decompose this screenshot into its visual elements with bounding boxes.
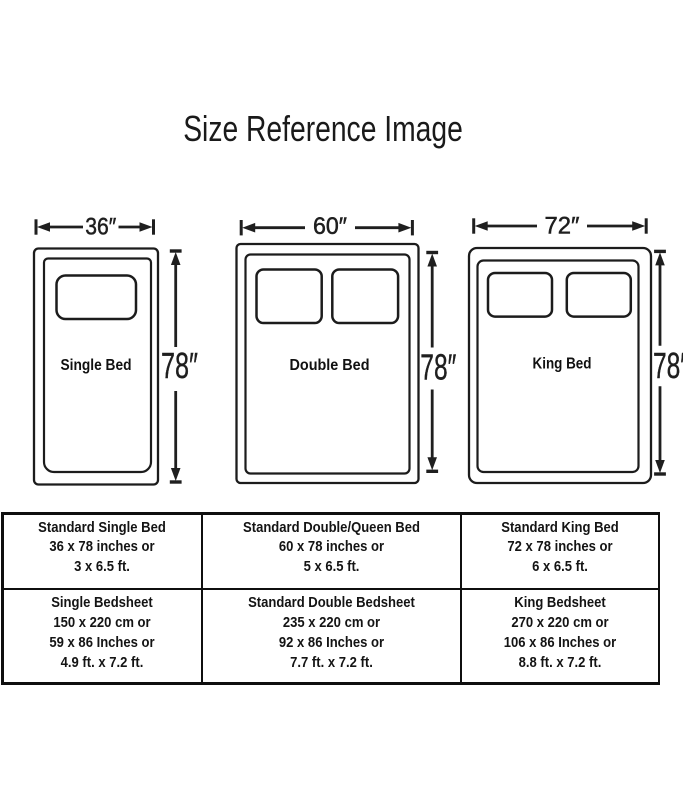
svg-text:King Bed: King Bed (533, 356, 592, 373)
svg-text:Double Bed: Double Bed (290, 357, 370, 374)
svg-text:72″: 72″ (545, 213, 580, 240)
svg-text:Single Bed: Single Bed (61, 357, 132, 374)
svg-text:78″: 78″ (420, 347, 456, 388)
svg-text:78″: 78″ (161, 345, 198, 386)
svg-text:60″: 60″ (313, 213, 347, 240)
svg-text:78″: 78″ (653, 345, 683, 386)
svg-text:36″: 36″ (85, 214, 116, 241)
